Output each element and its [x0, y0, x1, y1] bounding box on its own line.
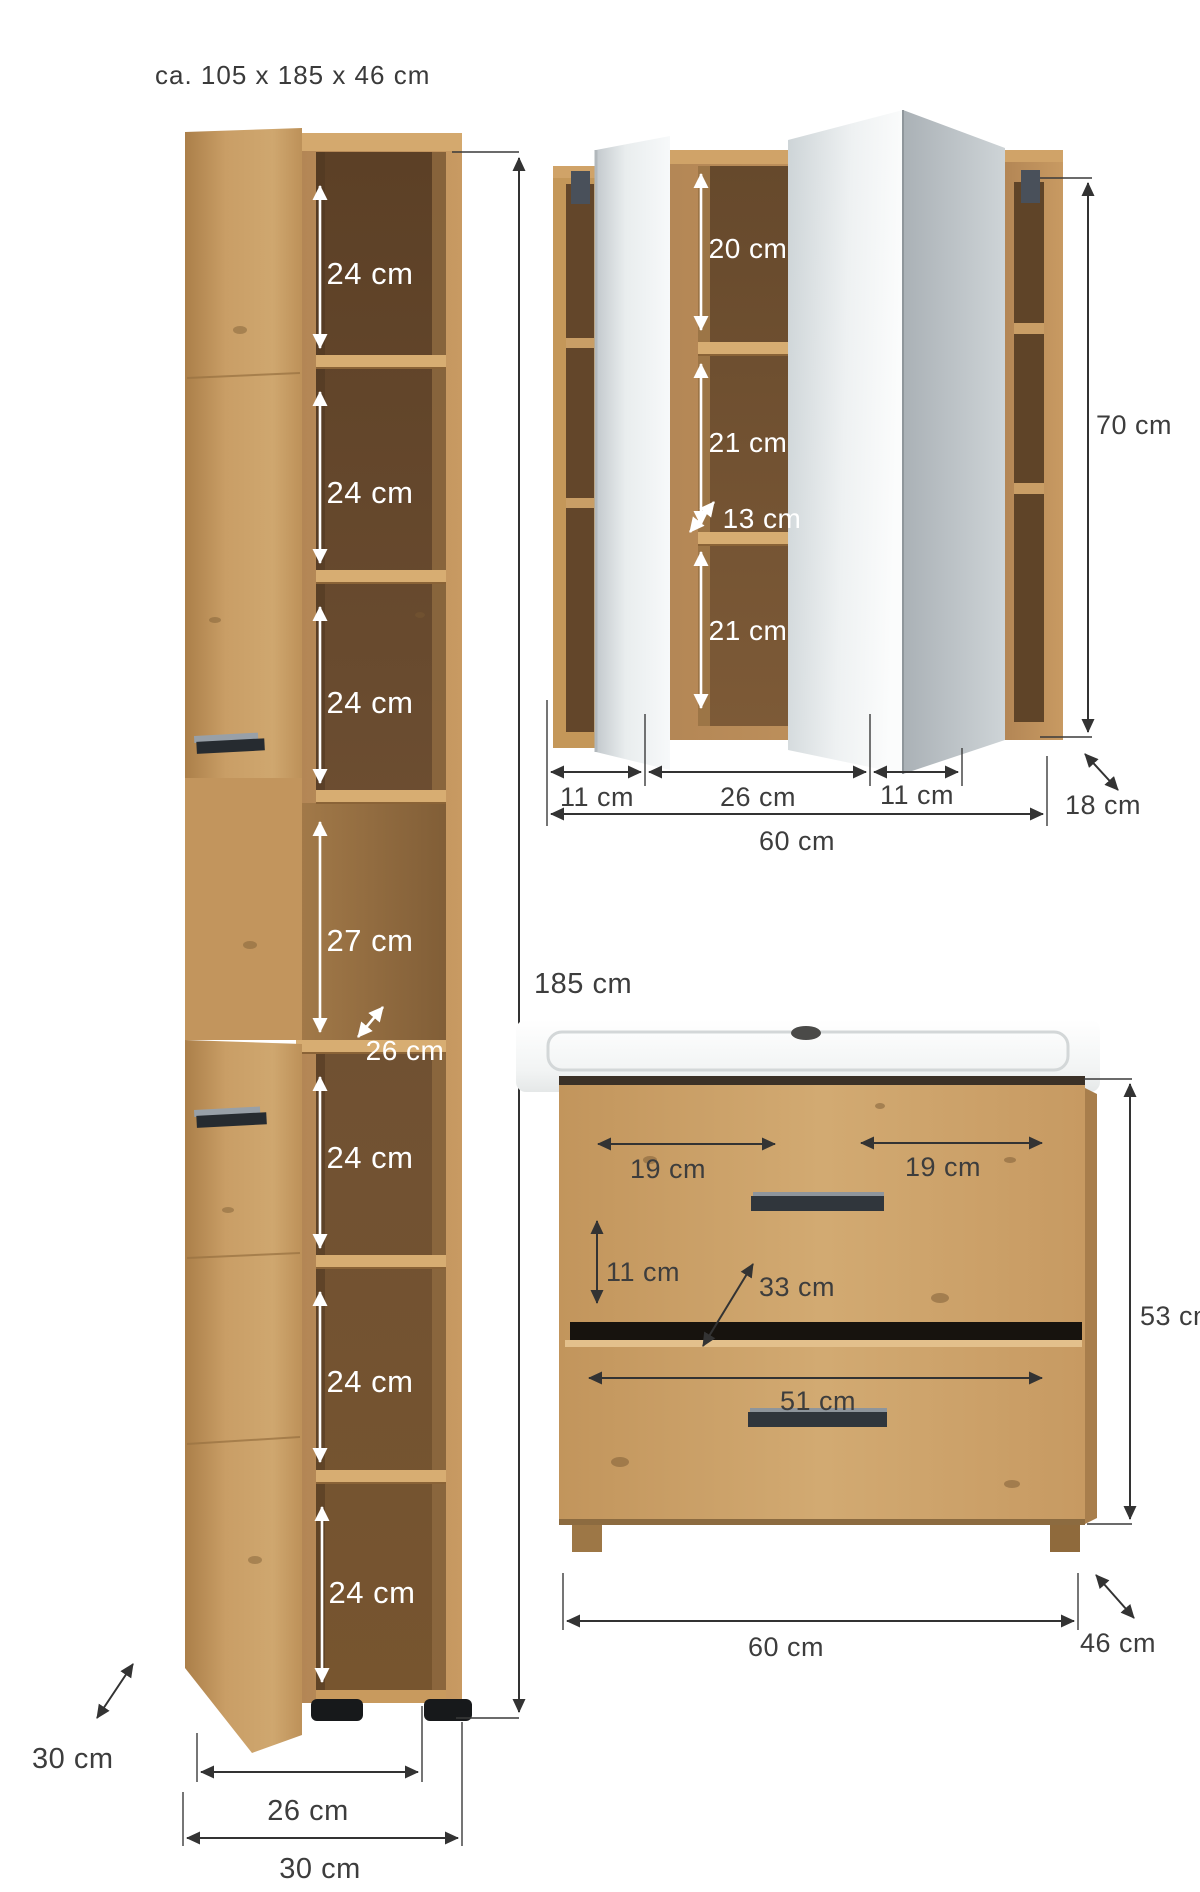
vanity-depth-label: 46 cm: [1080, 1628, 1156, 1658]
vanity-body: [559, 1085, 1085, 1525]
tall-cabinet-side-panel: [185, 778, 302, 1040]
mirror-right-width-label: 11 cm: [880, 780, 954, 810]
mirror-door-center-right: [903, 110, 1005, 774]
vanity-right-half-label: 19 cm: [905, 1152, 981, 1182]
niche-depth-label: 26 cm: [366, 1035, 445, 1066]
vanity-bottom-edge: [559, 1519, 1085, 1525]
compartment-1-label: 24 cm: [327, 256, 414, 291]
vanity-width-label: 60 cm: [748, 1632, 824, 1662]
mirror-bottom-section-label: 21 cm: [709, 615, 788, 646]
lower-door-handle: [194, 1106, 267, 1128]
mirror-cabinet: 20 cm 21 cm 13 cm 21 cm 70 cm 18 cm 11 c…: [547, 110, 1172, 856]
compartment-5-label: 24 cm: [327, 1140, 414, 1175]
tall-cabinet-foot-left: [311, 1699, 363, 1721]
mirror-height-label: 70 cm: [1096, 410, 1172, 440]
faucet-hole: [791, 1026, 821, 1040]
vanity-left-half-label: 19 cm: [630, 1154, 706, 1184]
diagram-canvas: ca. 105 x 185 x 46 cm: [0, 0, 1200, 1892]
outer-width-label: 30 cm: [279, 1853, 360, 1885]
compartment-4-label: 27 cm: [327, 923, 414, 958]
mirror-total-width-label: 60 cm: [759, 826, 835, 856]
mirror-cabinet-right-column: [1005, 150, 1063, 740]
mirror-middle-section-label: 21 cm: [709, 427, 788, 458]
inner-width-label: 26 cm: [267, 1795, 348, 1827]
tall-cabinet: 24 cm 24 cm 24 cm 27 cm 26 cm 24 cm 24 c…: [32, 128, 472, 1885]
furniture-dimension-diagram: ca. 105 x 185 x 46 cm: [0, 0, 1200, 1892]
drawer2-top-edge: [565, 1340, 1082, 1347]
page-title: ca. 105 x 185 x 46 cm: [155, 60, 430, 90]
mirror-shelf-depth-label: 13 cm: [723, 503, 802, 534]
wall-mount-bracket-right: [1021, 170, 1040, 203]
mirror-door-left: [596, 136, 670, 770]
vanity-inner-height-label: 11 cm: [606, 1257, 680, 1287]
vanity-inner-depth-label: 33 cm: [759, 1272, 835, 1302]
compartment-2-label: 24 cm: [327, 475, 414, 510]
upper-door-handle: [194, 732, 265, 754]
tall-cabinet-open-niche: [296, 803, 446, 1040]
mirror-door-center-left: [788, 110, 903, 774]
mirror-center-width-label: 26 cm: [720, 782, 796, 812]
total-height-label: 185 cm: [534, 968, 632, 1000]
mirror-top-section-label: 20 cm: [709, 233, 788, 264]
drawer-gap: [570, 1322, 1082, 1340]
tall-cabinet-top-face: [302, 133, 462, 151]
vanity-height-label: 53 cm: [1140, 1301, 1200, 1331]
mirror-cabinet-left-column: [553, 136, 670, 770]
vanity-foot-left: [572, 1525, 602, 1552]
side-depth-label: 30 cm: [32, 1743, 113, 1775]
wall-mount-bracket-left: [571, 171, 590, 204]
mirror-left-width-label: 11 cm: [560, 782, 634, 812]
tall-cabinet-lower-door: [185, 1040, 302, 1753]
vanity-right-side: [1085, 1088, 1097, 1524]
mirror-depth-label: 18 cm: [1065, 790, 1141, 820]
vanity-drawer-width-label: 51 cm: [780, 1386, 856, 1416]
vanity-foot-right: [1050, 1525, 1080, 1552]
compartment-6-label: 24 cm: [327, 1364, 414, 1399]
vanity-unit: 19 cm 19 cm 11 cm 33 cm 51 cm 53 cm 60 c…: [516, 1020, 1200, 1662]
drawer1-handle: [751, 1192, 884, 1211]
compartment-7-label: 24 cm: [329, 1575, 416, 1610]
compartment-3-label: 24 cm: [327, 685, 414, 720]
tall-cabinet-upper-door: [185, 128, 302, 778]
